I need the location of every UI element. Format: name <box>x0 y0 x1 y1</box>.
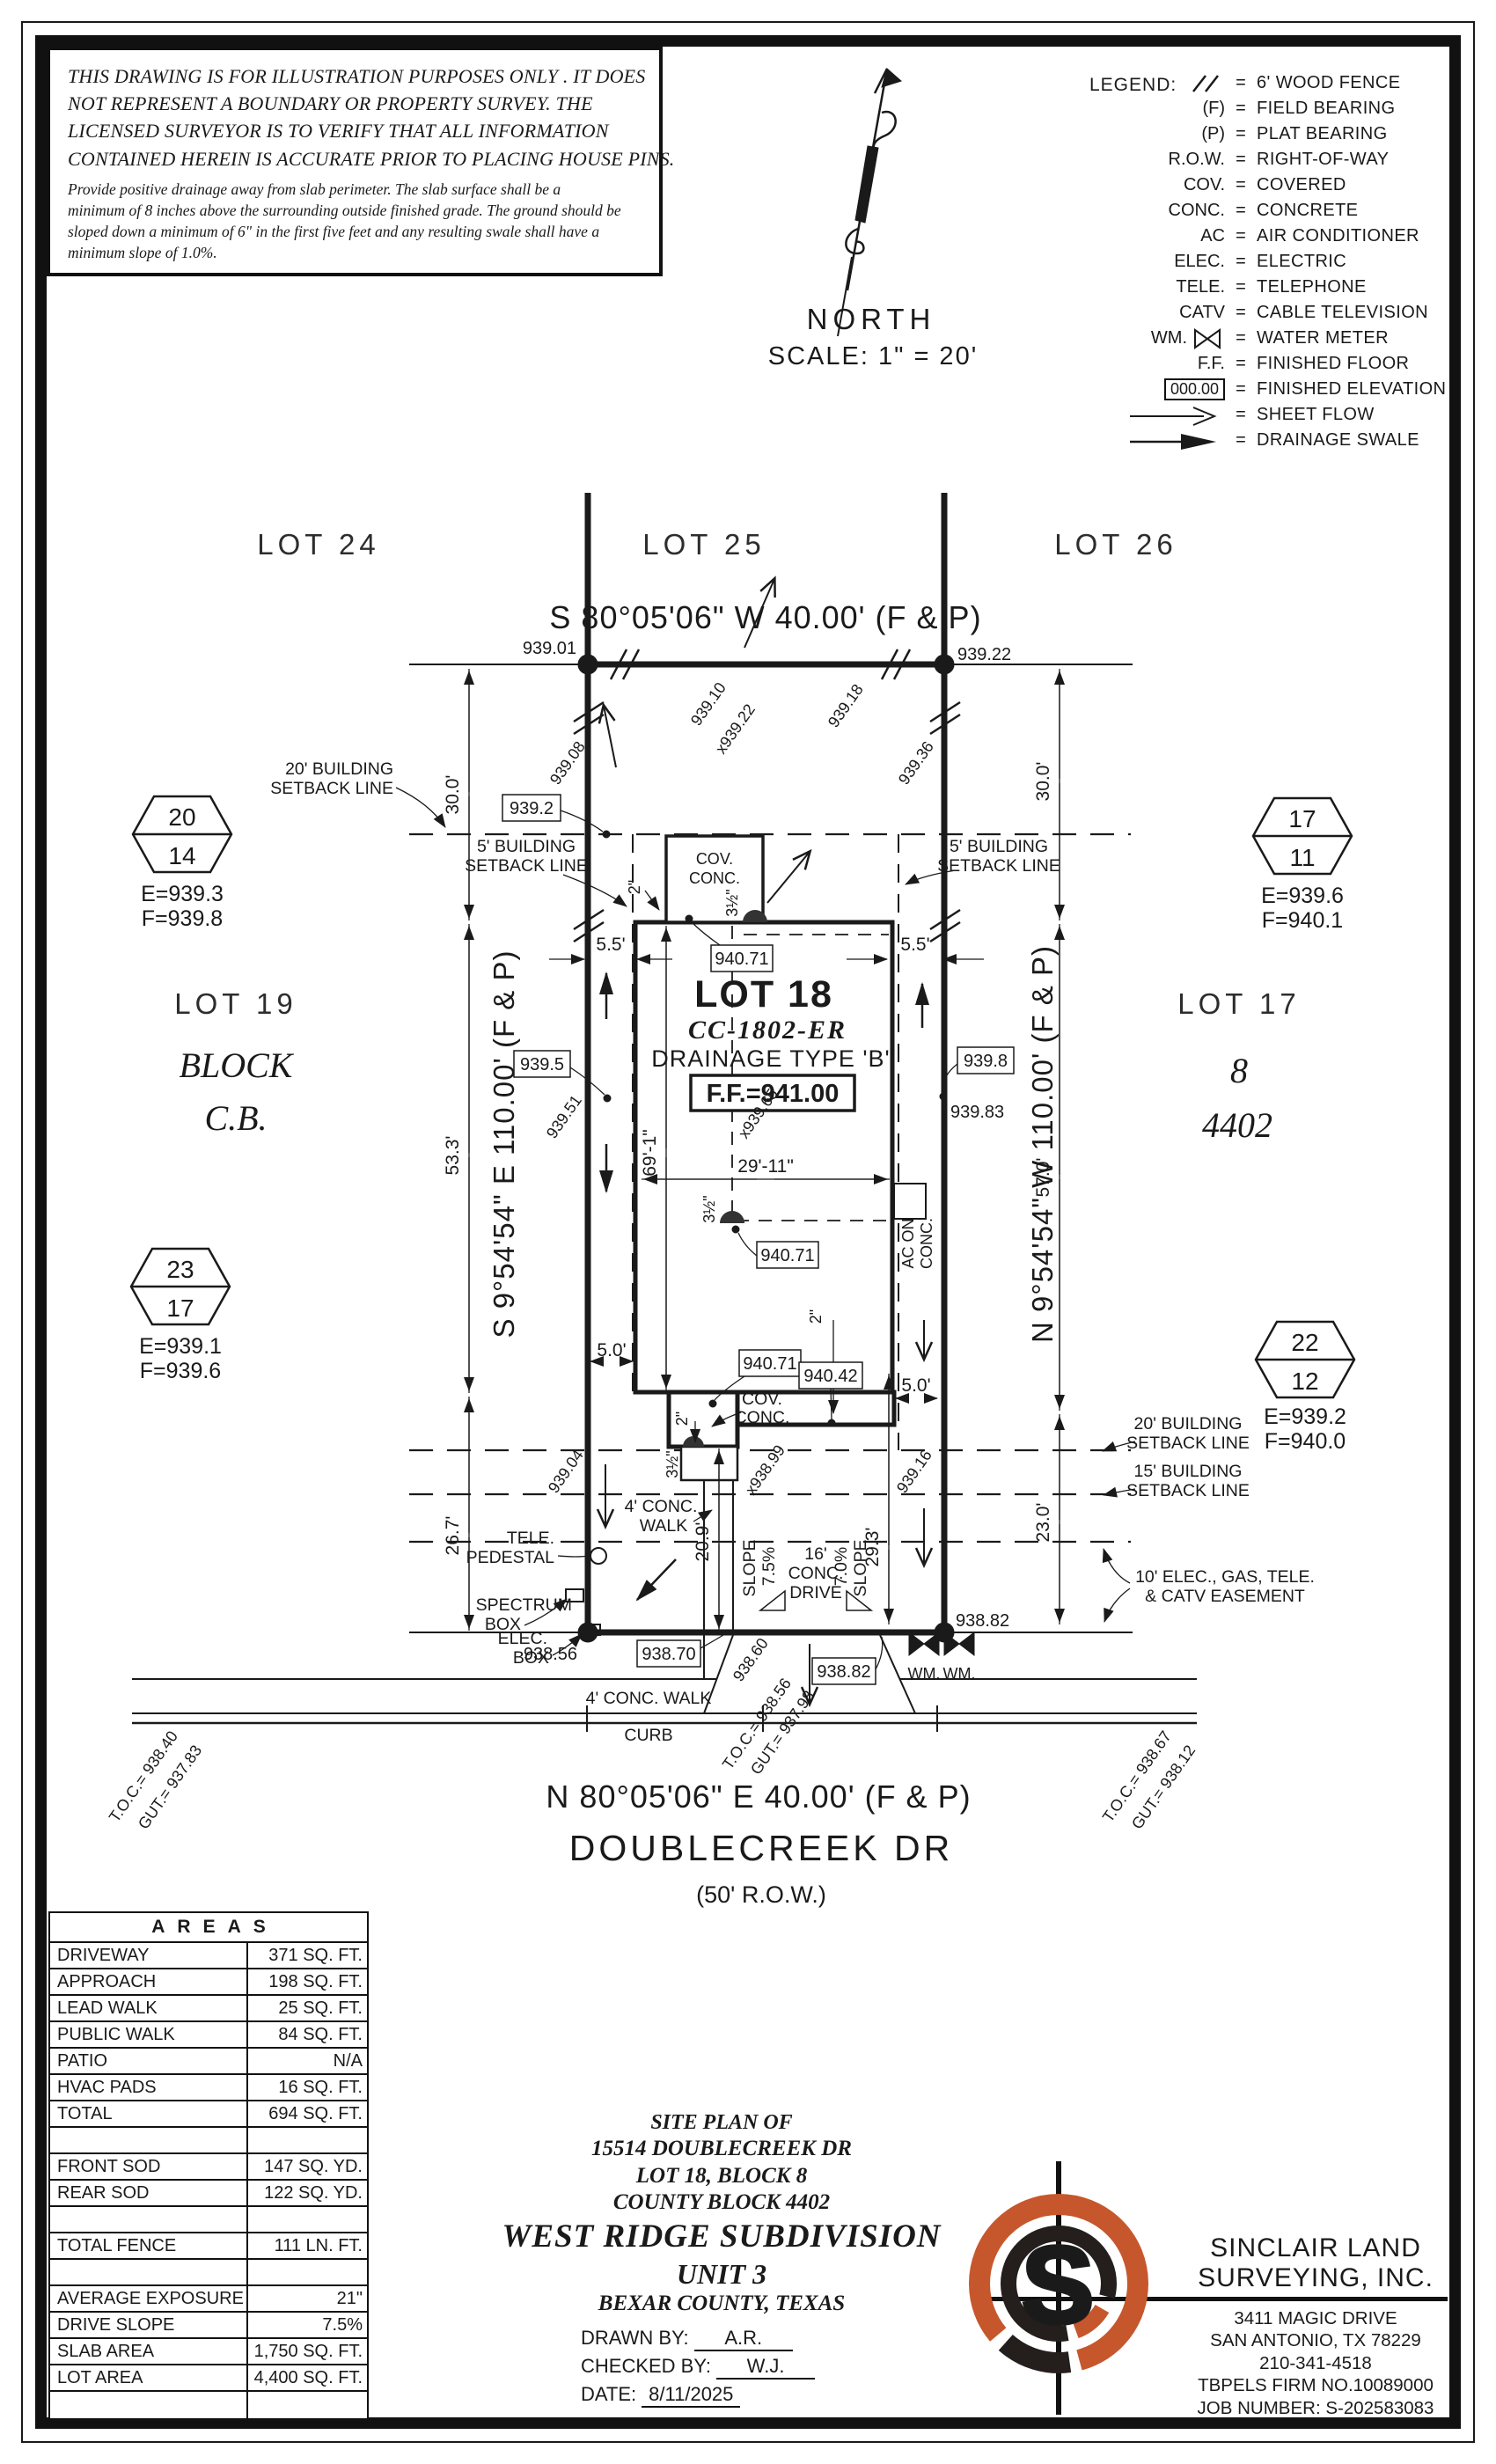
drainage-type: DRAINAGE TYPE 'B' <box>651 1045 890 1072</box>
ac-conc-label: CONC. <box>918 1218 935 1269</box>
row-label <box>50 2207 248 2232</box>
spot-93983: 939.83 <box>950 1103 1004 1122</box>
disclaimer-line: NOT REPRESENT A BOUNDARY OR PROPERTY SUR… <box>68 90 643 117</box>
company-city: SAN ANTONIO, TX 78229 <box>1175 2329 1456 2351</box>
drainage-note-line: minimum slope of 1.0%. <box>68 242 643 263</box>
grade-93936: 939.36 <box>895 738 937 788</box>
table-row: SLAB AREA1,750 SQ. FT. <box>50 2339 367 2365</box>
scale-label: SCALE: 1" = 20' <box>768 342 978 370</box>
bearing-south-line: N 80°05'06" E 40.00' (F & P) <box>546 1778 971 1815</box>
disclaimer-line: THIS DRAWING IS FOR ILLUSTRATION PURPOSE… <box>68 62 643 90</box>
legend-eq: = <box>1225 201 1257 221</box>
legend-row: TELE.=TELEPHONE <box>1089 275 1468 300</box>
drainage-note-line: sloped down a minimum of 6" in the first… <box>68 221 643 242</box>
wm-label-1: WM. <box>908 1665 941 1683</box>
date-label: DATE: <box>581 2383 636 2405</box>
dim-30-right: 30.0' <box>1033 762 1053 802</box>
public-walk-label: 4' CONC. WALK <box>586 1689 712 1708</box>
legend-sym: (P) <box>1089 124 1225 144</box>
job-number: JOB NUMBER: S-202583083 <box>1175 2397 1456 2419</box>
title-line: SITE PLAN OF <box>458 2110 986 2136</box>
finished-elev-sample: 000.00 <box>1164 378 1225 400</box>
setback20-rear-2: SETBACK LINE <box>270 779 393 798</box>
slope-left-pct: 7.5% <box>759 1547 779 1586</box>
street-name: DOUBLECREEK DR <box>569 1828 953 1868</box>
legend-sym: CATV <box>1089 303 1225 323</box>
grade-93951: 939.51 <box>543 1092 585 1142</box>
legend-label: CONCRETE <box>1257 201 1358 221</box>
legend-label: DRAINAGE SWALE <box>1257 430 1419 451</box>
table-row: PUBLIC WALK84 SQ. FT. <box>50 2022 367 2049</box>
corner-elev-sw: 938.56 <box>524 1645 577 1664</box>
lead-walk-label-1: 4' CONC. <box>625 1497 698 1516</box>
hex4-e: E=939.2 <box>1264 1404 1346 1429</box>
company-info: 3411 MAGIC DRIVE SAN ANTONIO, TX 78229 2… <box>1175 2307 1456 2419</box>
row-value: 198 SQ. FT. <box>248 1969 367 1994</box>
legend-eq: = <box>1225 175 1257 195</box>
row-value: 1,750 SQ. FT. <box>248 2339 367 2364</box>
spectrum-label: SPECTRUM <box>476 1595 572 1615</box>
row-label: AVERAGE EXPOSURE <box>50 2286 248 2311</box>
cov-conc-rear-1: COV. <box>696 850 733 868</box>
drainage-swale-icon <box>1128 429 1225 452</box>
row-label <box>50 2392 248 2418</box>
cov-conc-front-1: COV. <box>742 1390 782 1409</box>
legend-eq: = <box>1225 73 1257 93</box>
disclaimer-line: LICENSED SURVEYOR IS TO VERIFY THAT ALL … <box>68 117 643 144</box>
setback20-front-1: 20' BUILDING <box>1134 1414 1243 1434</box>
row-value: 4,400 SQ. FT. <box>248 2365 367 2390</box>
table-row: TOTAL FENCE111 LN. FT. <box>50 2233 367 2260</box>
disclaimer-box: THIS DRAWING IS FOR ILLUSTRATION PURPOSE… <box>47 47 663 276</box>
legend-sym: COV. <box>1089 175 1225 195</box>
legend-sym: WM. <box>1151 328 1187 348</box>
boxed-94071-b: 940.71 <box>760 1246 814 1265</box>
legend-label: RIGHT-OF-WAY <box>1257 150 1389 170</box>
table-row <box>50 2392 367 2418</box>
dim-30-left: 30.0' <box>443 775 463 815</box>
hex3-top: 17 <box>1288 805 1316 832</box>
legend-row: COV.=COVERED <box>1089 172 1468 198</box>
table-row: TOTAL694 SQ. FT. <box>50 2101 367 2128</box>
grade-93908: 939.08 <box>546 738 589 788</box>
setback15-front-1: 15' BUILDING <box>1134 1462 1243 1481</box>
hex2-top: 23 <box>166 1256 194 1283</box>
legend-row: (F)=FIELD BEARING <box>1089 96 1468 121</box>
lead-walk-label-2: WALK <box>640 1516 688 1536</box>
legend-label: FINISHED ELEVATION <box>1257 379 1446 400</box>
tele-label: TELE. <box>507 1529 554 1548</box>
title-address: 15514 DOUBLECREEK DR <box>458 2136 986 2163</box>
disclaimer-caps: THIS DRAWING IS FOR ILLUSTRATION PURPOSE… <box>68 62 643 172</box>
dim-293: 29.3' <box>862 1528 883 1567</box>
hex1-e: E=939.3 <box>141 882 224 906</box>
row-label: PATIO <box>50 2049 248 2073</box>
row-label: SLAB AREA <box>50 2339 248 2364</box>
legend-eq: = <box>1225 379 1257 400</box>
row-value: 111 LN. FT. <box>248 2233 367 2258</box>
drainage-note-line: Provide positive drainage away from slab… <box>68 179 643 200</box>
disclaimer-line: CONTAINED HEREIN IS ACCURATE PRIOR TO PL… <box>68 145 643 172</box>
company-phone: 210-341-4518 <box>1175 2352 1456 2374</box>
lot18-label: LOT 18 <box>694 973 833 1016</box>
row-value: 7.5% <box>248 2313 367 2337</box>
dim-50-left: 5.0' <box>597 1340 626 1360</box>
legend-label: WATER METER <box>1257 328 1389 348</box>
company-name: SINCLAIR LAND SURVEYING, INC. <box>1175 2233 1456 2292</box>
row-label: LOT AREA <box>50 2365 248 2390</box>
dim-2911: 29'-11" <box>737 1156 794 1177</box>
grade-93904: 939.04 <box>545 1447 587 1497</box>
wm-label-2: WM. <box>943 1665 976 1683</box>
grade-93910: 939.10 <box>687 679 730 730</box>
row-value: N/A <box>248 2049 367 2073</box>
table-row: LEAD WALK25 SQ. FT. <box>50 1996 367 2022</box>
legend-sym: CONC. <box>1089 201 1225 221</box>
title-county: BEXAR COUNTY, TEXAS <box>458 2291 986 2318</box>
dim-533: 53.3' <box>443 1136 463 1176</box>
setback20-rear-1: 20' BUILDING <box>285 759 393 779</box>
ac-on-label: AC ON <box>899 1218 917 1268</box>
legend-row: F.F.=FINISHED FLOOR <box>1089 351 1468 377</box>
legend-row: = DRAINAGE SWALE <box>1089 428 1468 453</box>
table-row: APPROACH198 SQ. FT. <box>50 1969 367 1996</box>
legend-sym: AC <box>1089 226 1225 246</box>
legend-label: FINISHED FLOOR <box>1257 354 1409 374</box>
hex2-f: F=939.6 <box>140 1359 221 1383</box>
areas-table: AREAS DRIVEWAY371 SQ. FT. APPROACH198 SQ… <box>48 1911 369 2420</box>
dim-267: 26.7' <box>443 1516 463 1556</box>
legend-row: 000.00=FINISHED ELEVATION <box>1089 377 1468 402</box>
drawn-by-label: DRAWN BY: <box>581 2327 689 2349</box>
row-label: PUBLIC WALK <box>50 2022 248 2047</box>
row-value: 694 SQ. FT. <box>248 2101 367 2126</box>
legend-row: ELEC.=ELECTRIC <box>1089 249 1468 275</box>
boxed-94042: 940.42 <box>803 1367 857 1386</box>
row-label: TOTAL <box>50 2101 248 2126</box>
row-value: 147 SQ. YD. <box>248 2154 367 2179</box>
legend-eq: = <box>1225 354 1257 374</box>
legend-label: FIELD BEARING <box>1257 99 1395 119</box>
title-unit: UNIT 3 <box>458 2257 986 2291</box>
hex1-f: F=939.8 <box>142 906 223 931</box>
dim-209: 20.9' <box>693 1522 713 1562</box>
street-row: (50' R.O.W.) <box>696 1881 826 1908</box>
setback5-right-1: 5' BUILDING <box>950 837 1048 856</box>
lot19-label: LOT 19 <box>174 987 297 1020</box>
cb4402-label: 4402 <box>1202 1105 1272 1145</box>
dim-57: 57.0' <box>1033 1158 1053 1198</box>
title-county-block: COUNTY BLOCK 4402 <box>458 2189 986 2217</box>
table-row: LOT AREA4,400 SQ. FT. <box>50 2365 367 2392</box>
setback5-left-2: SETBACK LINE <box>465 856 588 876</box>
dim-35in-rear: 3½" <box>723 889 741 916</box>
block8-label: 8 <box>1230 1051 1248 1090</box>
table-row <box>50 2207 367 2233</box>
row-value: 122 SQ. YD. <box>248 2181 367 2205</box>
drive-label-1: 16' <box>804 1544 826 1564</box>
checked-by-value: W.J. <box>716 2355 815 2380</box>
cov-conc-rear-2: CONC. <box>689 869 740 887</box>
boxed-9395: 939.5 <box>520 1055 564 1074</box>
legend-row: R.O.W.=RIGHT-OF-WAY <box>1089 147 1468 172</box>
wood-fence-ticks <box>574 649 960 942</box>
legend-sym: R.O.W. <box>1089 150 1225 170</box>
row-label <box>50 2128 248 2152</box>
hex3-e: E=939.6 <box>1261 884 1344 908</box>
drainage-note: Provide positive drainage away from slab… <box>68 179 643 264</box>
legend-label: CABLE TELEVISION <box>1257 303 1428 323</box>
dim-35in-mid: 3½" <box>700 1195 718 1222</box>
row-value: 84 SQ. FT. <box>248 2022 367 2047</box>
sinclair-logo: S <box>957 2156 1160 2420</box>
legend-title: LEGEND: <box>1089 75 1177 96</box>
hex4-top: 22 <box>1291 1329 1318 1356</box>
bearing-east-line: N 9°54'54" W 110.00' (F & P) <box>1026 945 1059 1343</box>
row-value <box>248 2260 367 2284</box>
sheet-flow-icon <box>1128 404 1225 427</box>
row-value: 21" <box>248 2286 367 2311</box>
table-row: PATION/A <box>50 2049 367 2075</box>
legend-sym: ELEC. <box>1089 252 1225 272</box>
legend-label: AIR CONDITIONER <box>1257 226 1419 246</box>
easement-label-2: & CATV EASEMENT <box>1145 1587 1305 1606</box>
north-arrow-icon <box>838 69 901 336</box>
corner-elev-ne: 939.22 <box>957 645 1011 664</box>
legend-row: AC=AIR CONDITIONER <box>1089 224 1468 249</box>
hex1-bottom: 14 <box>168 842 195 869</box>
dim-2in-porch: 2" <box>807 1309 825 1324</box>
table-row: DRIVE SLOPE7.5% <box>50 2313 367 2339</box>
title-block: SITE PLAN OF 15514 DOUBLECREEK DR LOT 18… <box>458 2110 986 2408</box>
legend-label: SHEET FLOW <box>1257 405 1375 425</box>
legend-eq: = <box>1225 277 1257 297</box>
setback15-front-2: SETBACK LINE <box>1126 1481 1250 1500</box>
setback20-front-2: SETBACK LINE <box>1126 1434 1250 1453</box>
hex2-bottom: 17 <box>166 1294 194 1322</box>
north-label: NORTH <box>807 303 936 335</box>
dim-691: 69'-1" <box>640 1129 660 1177</box>
areas-table-title: AREAS <box>50 1913 367 1943</box>
table-row: HVAC PADS16 SQ. FT. <box>50 2075 367 2101</box>
grade-x93922: x939.22 <box>712 700 759 757</box>
table-row <box>50 2260 367 2286</box>
table-row: DRIVEWAY371 SQ. FT. <box>50 1943 367 1969</box>
easement-label-1: 10' ELEC., GAS, TELE. <box>1135 1567 1315 1587</box>
legend: LEGEND: = 6' WOOD FENCE (F)=FIELD BEARIN… <box>1089 70 1468 453</box>
slope-left-word: SLOPE <box>740 1539 759 1596</box>
title-lot-block: LOT 18, BLOCK 8 <box>458 2163 986 2190</box>
company-name-line1: SINCLAIR LAND <box>1175 2233 1456 2263</box>
corner-elev-se: 938.82 <box>956 1611 1009 1631</box>
legend-label: PLAT BEARING <box>1257 124 1388 144</box>
lot25-label: LOT 25 <box>642 528 765 561</box>
block-cb: C.B. <box>204 1098 267 1138</box>
row-label: HVAC PADS <box>50 2075 248 2100</box>
legend-eq: = <box>1225 124 1257 144</box>
grade-93916: 939.16 <box>893 1447 935 1497</box>
water-meter-icon <box>1192 326 1225 351</box>
hex3-f: F=940.1 <box>1262 908 1343 933</box>
legend-eq: = <box>1225 226 1257 246</box>
legend-eq: = <box>1225 303 1257 323</box>
dim-23: 23.0' <box>1033 1503 1053 1543</box>
pedestal-label: PEDESTAL <box>466 1548 555 1567</box>
row-label <box>50 2260 248 2284</box>
dim-55-left: 5.5' <box>596 935 625 955</box>
grade-93860: 938.60 <box>730 1635 772 1685</box>
hex4-f: F=940.0 <box>1265 1429 1346 1454</box>
boxed-94071-a: 940.71 <box>715 950 768 969</box>
plan-text: NORTH SCALE: 1" = 20' LOT 24 LOT 25 LOT … <box>106 303 1346 1908</box>
hex2-e: E=939.1 <box>139 1334 222 1359</box>
lot26-label: LOT 26 <box>1054 528 1177 561</box>
hex3-bottom: 11 <box>1289 844 1315 871</box>
drawn-by-value: A.R. <box>694 2327 793 2351</box>
title-meta: DRAWN BY: A.R. CHECKED BY: W.J. DATE: 8/… <box>581 2327 862 2408</box>
row-label: TOTAL FENCE <box>50 2233 248 2258</box>
surveyor-block: S SINCLAIR LAND SURVEYING, INC. 3411 MAG… <box>950 2156 1456 2420</box>
row-value: 25 SQ. FT. <box>248 1996 367 2020</box>
bearing-north-line: S 80°05'06" W 40.00' (F & P) <box>549 599 981 635</box>
setback5-left-1: 5' BUILDING <box>477 837 576 856</box>
legend-row: CONC.=CONCRETE <box>1089 198 1468 224</box>
company-name-line2: SURVEYING, INC. <box>1175 2263 1456 2293</box>
legend-label: TELEPHONE <box>1257 277 1367 297</box>
table-row: FRONT SOD147 SQ. YD. <box>50 2154 367 2181</box>
row-value <box>248 2392 367 2418</box>
logo-letter: S <box>1021 2225 1094 2347</box>
corner-elev-nw: 939.01 <box>523 639 576 658</box>
row-value <box>248 2207 367 2232</box>
block-word: BLOCK <box>180 1045 295 1085</box>
legend-label: ELECTRIC <box>1257 252 1346 272</box>
row-value <box>248 2128 367 2152</box>
legend-sym: TELE. <box>1089 277 1225 297</box>
row-label: DRIVE SLOPE <box>50 2313 248 2337</box>
drainage-note-line: minimum of 8 inches above the surroundin… <box>68 200 643 221</box>
dim-55-right: 5.5' <box>900 935 929 955</box>
table-row: REAR SOD122 SQ. YD. <box>50 2181 367 2207</box>
legend-row: = SHEET FLOW <box>1089 402 1468 428</box>
lot24-label: LOT 24 <box>257 528 379 561</box>
legend-eq: = <box>1225 150 1257 170</box>
row-label: REAR SOD <box>50 2181 248 2205</box>
legend-row: CATV=CABLE TELEVISION <box>1089 300 1468 326</box>
row-label: FRONT SOD <box>50 2154 248 2179</box>
company-address: 3411 MAGIC DRIVE <box>1175 2307 1456 2329</box>
dim-2in-garage: 2" <box>673 1412 691 1426</box>
dim-35in-front: 3½" <box>664 1450 681 1478</box>
hex1-top: 20 <box>168 803 195 831</box>
lot17-label: LOT 17 <box>1177 987 1300 1020</box>
boxed-9392: 939.2 <box>510 799 554 818</box>
boxed-93882: 938.82 <box>817 1662 870 1682</box>
table-row <box>50 2128 367 2154</box>
grade-93918: 939.18 <box>825 681 867 731</box>
legend-eq: = <box>1225 405 1257 425</box>
legend-label: COVERED <box>1257 175 1346 195</box>
row-label: LEAD WALK <box>50 1996 248 2020</box>
table-row: AVERAGE EXPOSURE21" <box>50 2286 367 2313</box>
legend-sym: F.F. <box>1089 354 1225 374</box>
title-subdivision: WEST RIDGE SUBDIVISION <box>458 2217 986 2257</box>
row-label: DRIVEWAY <box>50 1943 248 1968</box>
boxed-9398: 939.8 <box>964 1052 1008 1071</box>
slope-right-pct: 7.0% <box>832 1547 851 1586</box>
legend-sym: (F) <box>1089 99 1225 119</box>
checked-by-label: CHECKED BY: <box>581 2355 711 2377</box>
bearing-west-line: S 9°54'54" E 110.00' (F & P) <box>488 950 520 1338</box>
curb-label: CURB <box>624 1726 672 1745</box>
cov-conc-front-2: CONC. <box>735 1408 790 1427</box>
company-firm-no: TBPELS FIRM NO.10089000 <box>1175 2374 1456 2396</box>
plan-number: CC-1802-ER <box>688 1016 847 1045</box>
legend-eq: = <box>1225 252 1257 272</box>
legend-eq: = <box>1225 430 1257 451</box>
legend-label: 6' WOOD FENCE <box>1257 73 1400 93</box>
row-value: 16 SQ. FT. <box>248 2075 367 2100</box>
boxed-93870: 938.70 <box>642 1645 695 1664</box>
row-value: 371 SQ. FT. <box>248 1943 367 1968</box>
legend-row: (P)=PLAT BEARING <box>1089 121 1468 147</box>
row-label: APPROACH <box>50 1969 248 1994</box>
date-value: 8/11/2025 <box>642 2383 740 2408</box>
hex4-bottom: 12 <box>1291 1368 1318 1395</box>
wood-fence-icon <box>1188 72 1225 95</box>
dim-50-right: 5.0' <box>901 1375 930 1396</box>
boxed-94071-c: 940.71 <box>743 1354 796 1374</box>
legend-row: WM. = WATER METER <box>1089 326 1468 351</box>
legend-eq: = <box>1225 328 1257 348</box>
dim-2in-rear: 2" <box>626 880 643 894</box>
legend-eq: = <box>1225 99 1257 119</box>
setback5-right-2: SETBACK LINE <box>937 856 1060 876</box>
